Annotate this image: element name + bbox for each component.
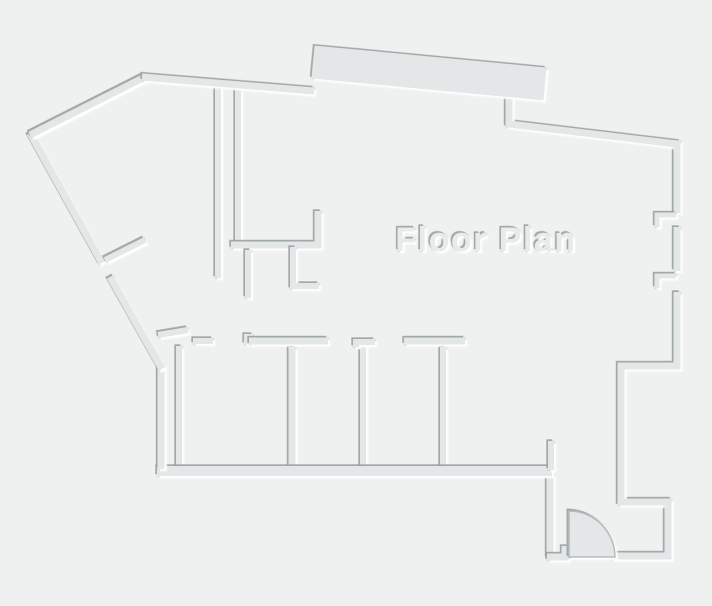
floor-plan-title: Floor Plan <box>395 221 576 259</box>
floor-plan-canvas: Floor Plan <box>0 0 712 606</box>
wall-top-band-wall <box>313 62 545 84</box>
floor-background <box>0 0 712 606</box>
